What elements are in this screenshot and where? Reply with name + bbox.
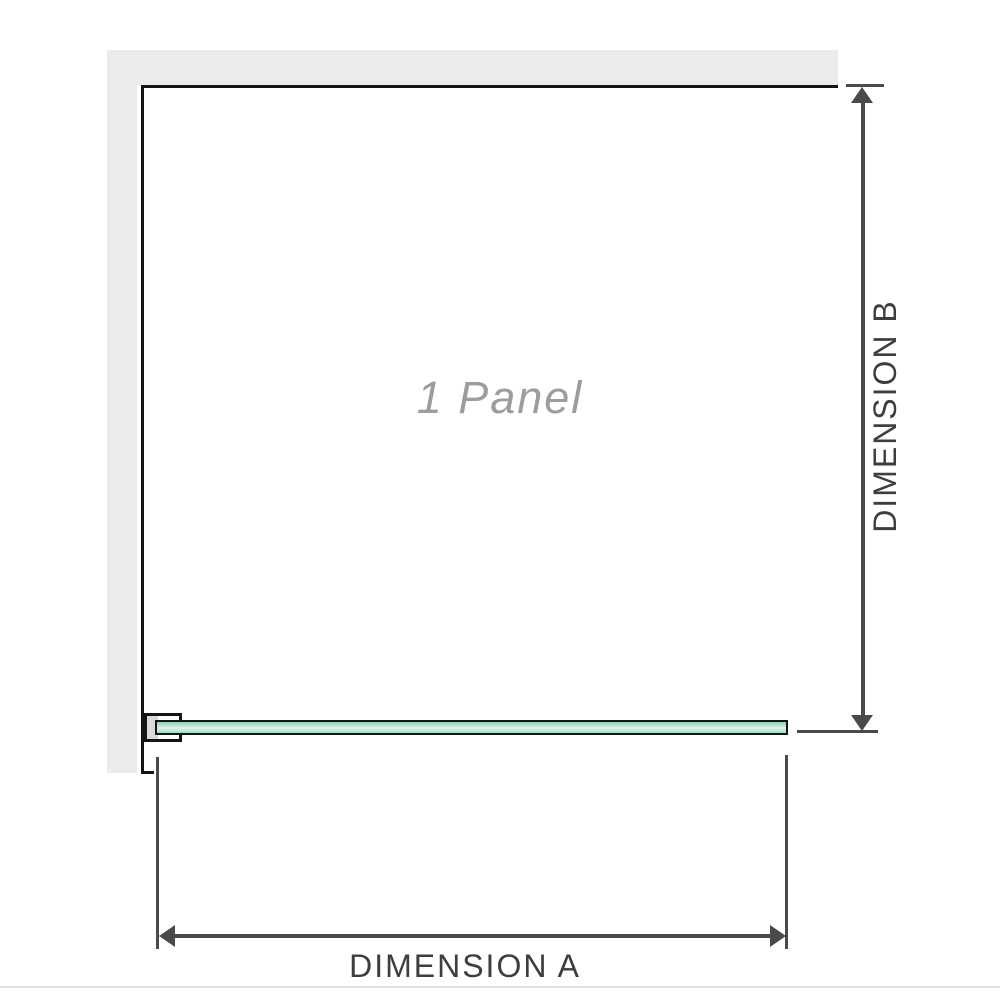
dimension-a-extension-left — [156, 757, 159, 949]
panel-count-label: 1 Panel — [300, 366, 700, 430]
enclosure-top-line — [141, 85, 838, 88]
dimension-b-label: DIMENSION B — [865, 266, 905, 566]
dimension-a-extension-right — [785, 755, 788, 949]
enclosure-left-line — [141, 85, 144, 772]
dimension-a-label: DIMENSION A — [315, 946, 615, 986]
arrow-right-icon — [770, 925, 786, 947]
glass-panel-bar — [155, 720, 788, 735]
arrow-up-icon — [851, 87, 873, 103]
enclosure-floor-notch — [141, 771, 154, 774]
footer-rule-line — [0, 986, 1000, 988]
wall-top-bar — [107, 50, 838, 85]
wall-left-bar — [107, 50, 137, 773]
arrow-left-icon — [159, 925, 175, 947]
arrow-down-icon — [851, 715, 873, 731]
shower-panel-diagram: 1 Panel DIMENSION B DIMENSION A — [0, 0, 1000, 1000]
dimension-a-line — [168, 934, 776, 938]
